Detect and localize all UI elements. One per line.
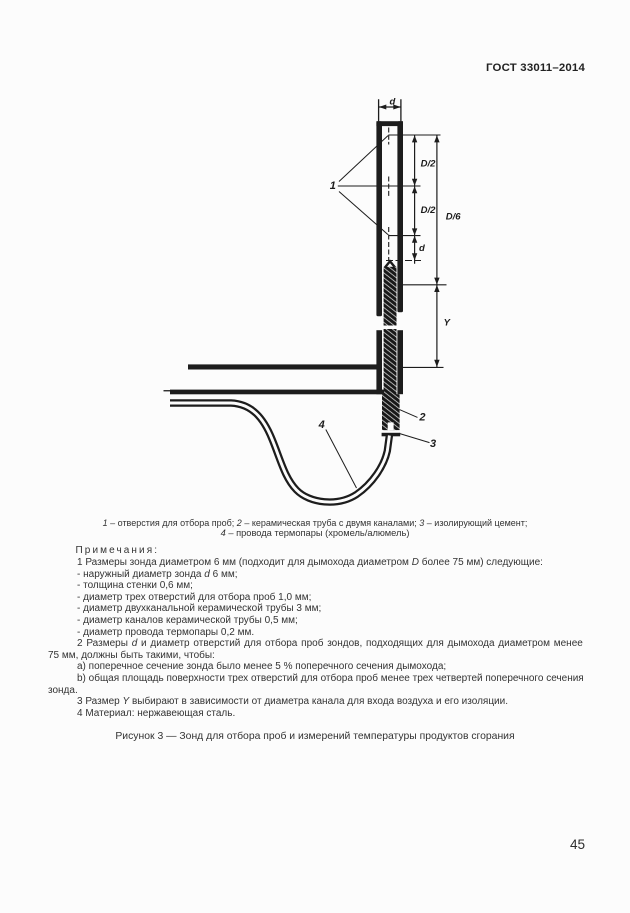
svg-text:D/2: D/2: [421, 158, 437, 169]
svg-text:3: 3: [430, 438, 436, 450]
svg-text:Y: Y: [444, 318, 452, 329]
svg-text:2: 2: [418, 411, 425, 423]
svg-text:1: 1: [330, 180, 336, 192]
svg-text:4: 4: [318, 419, 325, 431]
svg-text:D/6: D/6: [446, 211, 462, 222]
svg-text:d: d: [419, 243, 425, 254]
svg-text:d: d: [390, 96, 396, 107]
svg-text:D/2: D/2: [421, 205, 437, 216]
